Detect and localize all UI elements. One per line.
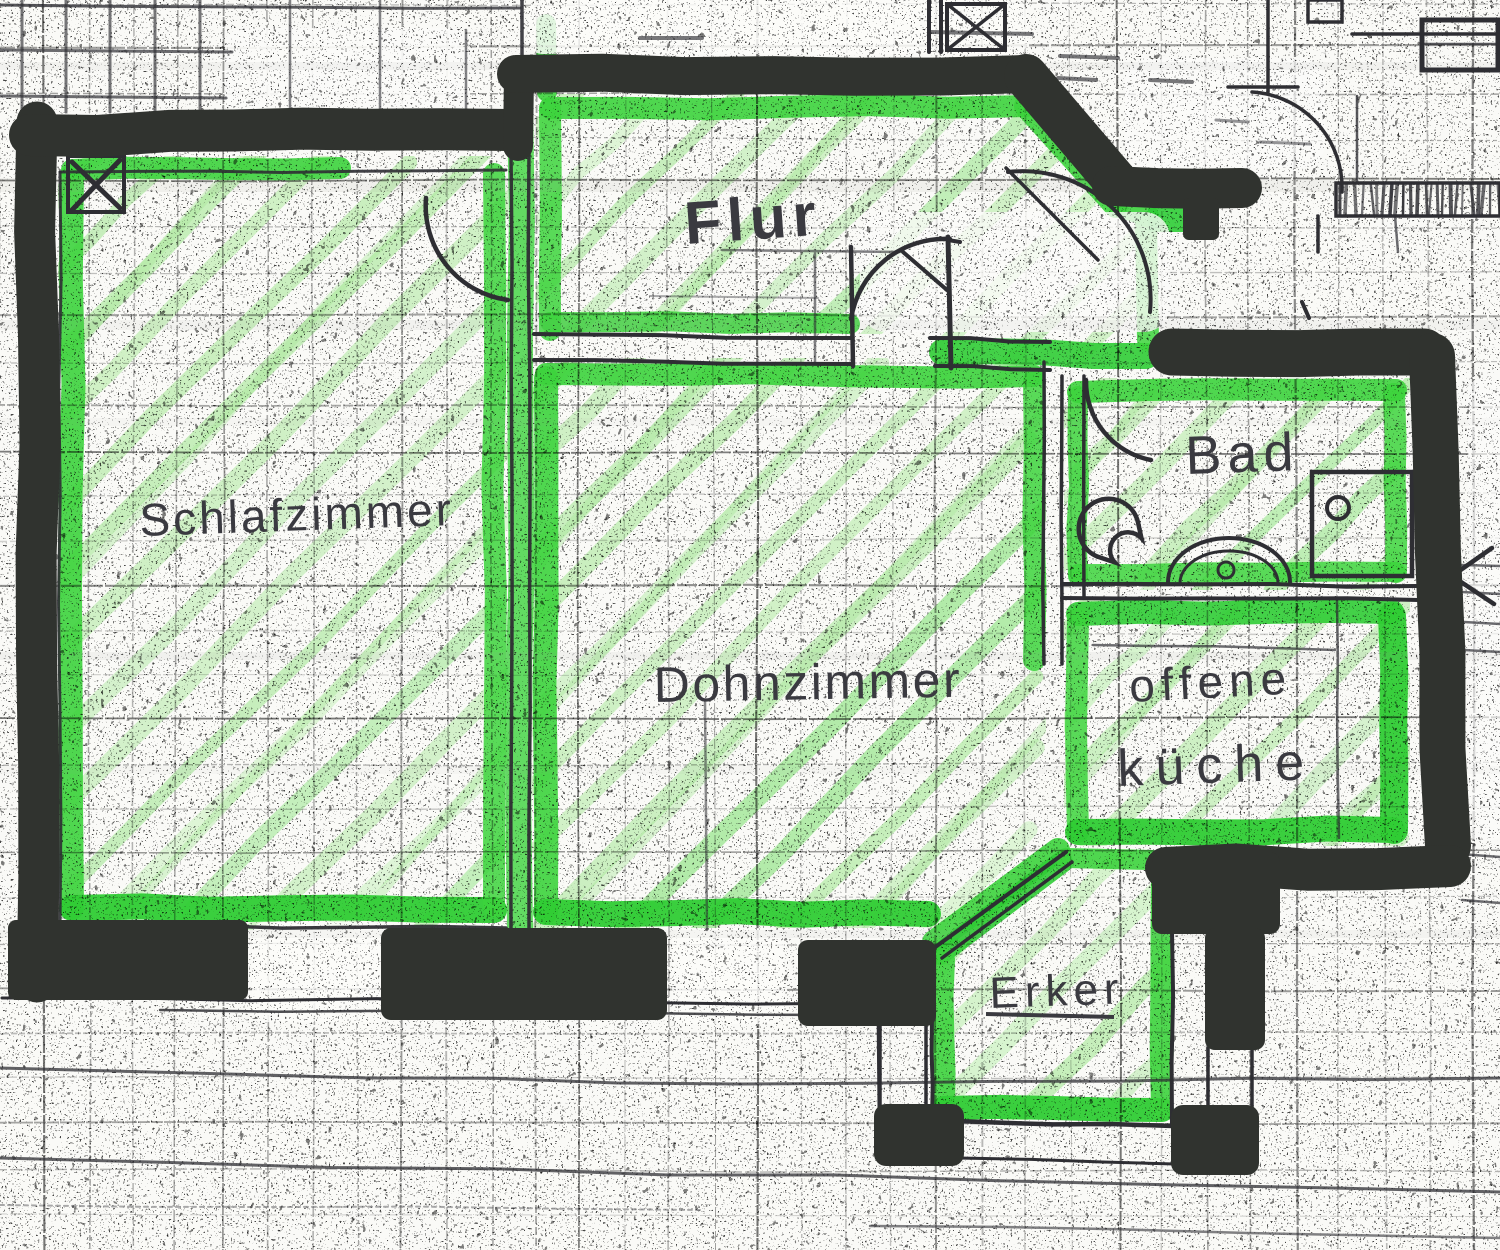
svg-text:küche: küche [1116,733,1317,798]
svg-text:Schlafzimmer: Schlafzimmer [139,483,455,546]
svg-text:offene: offene [1128,652,1294,712]
svg-text:Flur: Flur [682,181,824,257]
svg-text:Erker: Erker [989,964,1126,1018]
svg-text:Dohnzimmer: Dohnzimmer [653,652,962,713]
svg-text:Bad: Bad [1184,422,1300,486]
